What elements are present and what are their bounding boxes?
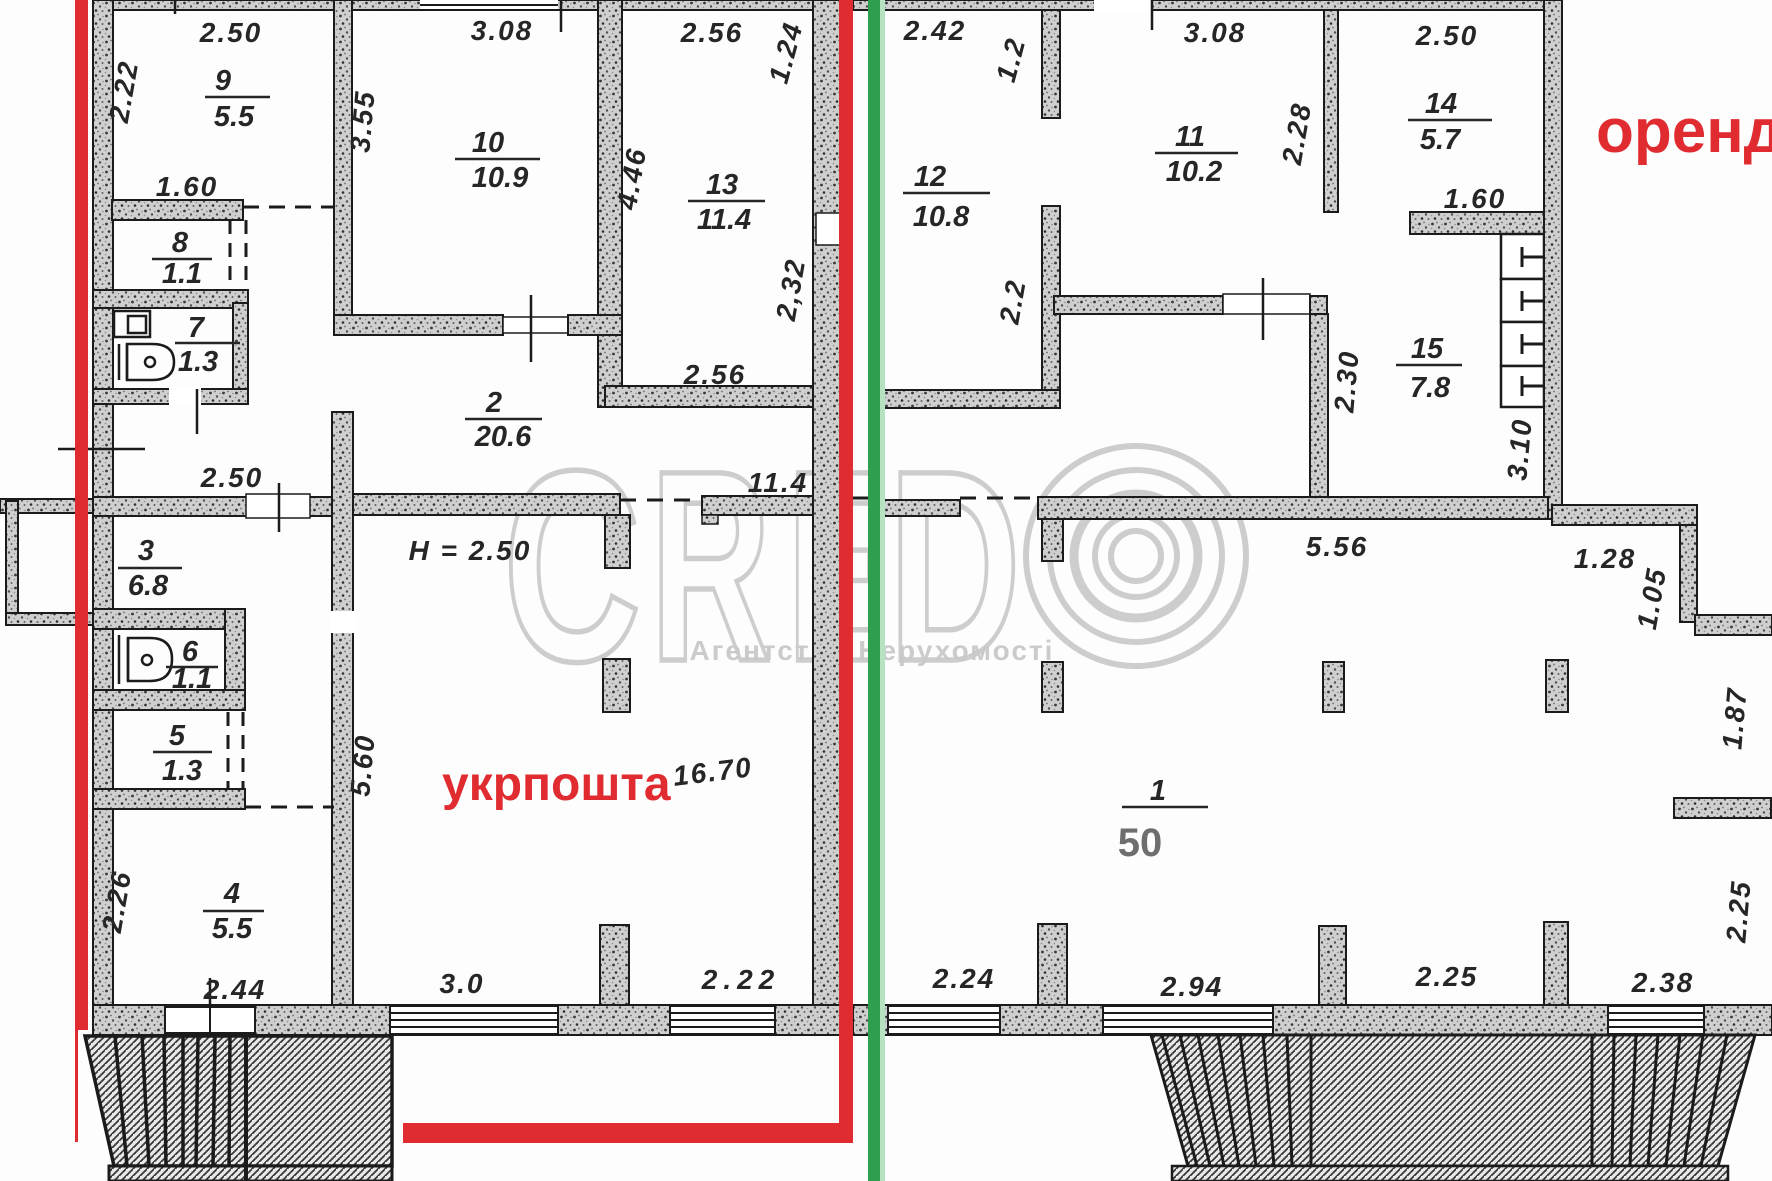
svg-text:1.87: 1.87	[1716, 686, 1752, 751]
svg-text:5.60: 5.60	[344, 733, 380, 798]
svg-text:14: 14	[1425, 88, 1457, 120]
svg-text:1.3: 1.3	[162, 755, 202, 787]
svg-text:R: R	[650, 414, 771, 718]
svg-text:10.8: 10.8	[913, 201, 970, 233]
svg-text:1.3: 1.3	[178, 346, 218, 378]
svg-text:2.50: 2.50	[199, 17, 263, 48]
svg-text:4: 4	[223, 878, 240, 910]
svg-text:5.5: 5.5	[214, 101, 255, 133]
svg-text:9: 9	[215, 65, 231, 97]
svg-text:1.60: 1.60	[156, 171, 219, 202]
svg-text:2.50: 2.50	[200, 462, 264, 493]
svg-text:11: 11	[1175, 121, 1205, 153]
svg-text:2.22: 2.22	[701, 964, 781, 995]
svg-text:3.08: 3.08	[471, 15, 534, 46]
svg-text:6.8: 6.8	[128, 570, 169, 602]
svg-text:5.7: 5.7	[1420, 124, 1462, 156]
svg-text:10.2: 10.2	[1166, 156, 1222, 188]
svg-text:2.24: 2.24	[932, 963, 996, 994]
svg-text:13: 13	[706, 169, 738, 201]
svg-text:2.56: 2.56	[680, 17, 744, 48]
svg-text:1.1: 1.1	[172, 663, 212, 695]
svg-text:5: 5	[169, 720, 186, 752]
svg-text:11.4: 11.4	[748, 467, 808, 498]
svg-text:2.94: 2.94	[1160, 971, 1224, 1002]
svg-text:8: 8	[172, 227, 189, 259]
svg-text:3: 3	[138, 535, 154, 567]
svg-text:D: D	[888, 414, 1021, 718]
svg-text:2.25: 2.25	[1720, 879, 1756, 945]
svg-text:10: 10	[472, 127, 504, 159]
svg-text:3.0: 3.0	[440, 968, 485, 999]
svg-text:1.60: 1.60	[1444, 183, 1507, 214]
svg-text:5.56: 5.56	[1306, 531, 1369, 562]
svg-text:2.38: 2.38	[1631, 967, 1695, 998]
svg-text:7.8: 7.8	[1410, 372, 1451, 404]
svg-text:2.56: 2.56	[683, 359, 747, 390]
svg-text:5.5: 5.5	[212, 913, 253, 945]
svg-text:1: 1	[1150, 775, 1166, 807]
svg-text:10.9: 10.9	[472, 162, 528, 194]
svg-text:12: 12	[914, 161, 946, 193]
svg-text:1.1: 1.1	[162, 258, 202, 290]
svg-text:3.10: 3.10	[1501, 417, 1537, 482]
svg-text:2.44: 2.44	[203, 974, 267, 1005]
svg-text:2.30: 2.30	[1328, 349, 1364, 415]
svg-text:7: 7	[188, 312, 206, 344]
svg-text:укрпошта: укрпошта	[442, 758, 671, 811]
svg-text:H = 2.50: H = 2.50	[409, 535, 532, 566]
svg-text:2.42: 2.42	[903, 15, 967, 46]
svg-text:3.08: 3.08	[1184, 17, 1247, 48]
svg-text:2: 2	[485, 387, 502, 419]
svg-text:2.50: 2.50	[1415, 20, 1479, 51]
svg-text:3.55: 3.55	[344, 89, 380, 154]
svg-text:20.6: 20.6	[474, 421, 532, 453]
svg-text:50: 50	[1118, 821, 1163, 865]
svg-text:15: 15	[1411, 333, 1444, 365]
svg-text:1.28: 1.28	[1574, 543, 1637, 574]
svg-text:оренда: оренда	[1596, 97, 1772, 166]
svg-text:2.25: 2.25	[1415, 961, 1479, 992]
svg-text:11.4: 11.4	[697, 204, 751, 236]
